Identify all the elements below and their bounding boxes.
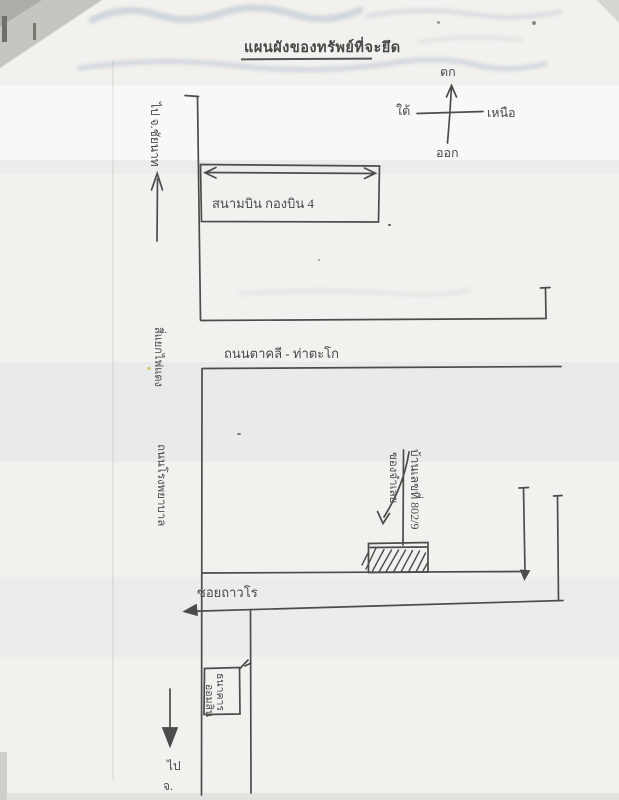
soi-label: ซอยถาวโร [197, 582, 258, 603]
airport-span-arrow [206, 173, 374, 174]
property-note-line1: บ้านเลขที่ 802/9 [405, 449, 424, 529]
compass-label-left: ใต้ [396, 101, 410, 121]
seized-house-box [362, 543, 428, 573]
property-note-line2: ของจำเลย [384, 452, 402, 503]
route-north-arrow [152, 174, 163, 242]
compass-cross [417, 86, 483, 144]
main-road-label: ถนนตาคลี - ท่าตะโก [224, 343, 339, 364]
property-note-underline [403, 450, 404, 545]
scan-speck [532, 21, 536, 25]
scan-speck [437, 21, 440, 24]
route-north-label: ไป จ.ชัยนาท [145, 102, 164, 167]
page-title: แผนผังของทรัพย์ที่จะยึด [244, 36, 401, 59]
scan-speck [388, 224, 391, 226]
scanned-map-page: แผนผังของทรัพย์ที่จะยึด ตก ใต้ เหนือ ออก… [0, 0, 619, 800]
intersection-label: สี่แยกไฟแดง [150, 327, 168, 387]
left-road-line [185, 96, 202, 796]
side-road-label: ถนนโรงพยาบาล [152, 444, 170, 526]
route-south-arrow [163, 689, 177, 746]
compass-label-bottom: ออก [436, 143, 459, 163]
scan-speck [318, 259, 320, 261]
map-drawing [0, 0, 619, 800]
route-south-label-line1: ไป [167, 757, 181, 776]
airport-label: สนามบิน กองบิน 4 [212, 193, 314, 214]
hatching [362, 548, 428, 571]
route-south-label-line2: จ. [163, 777, 173, 796]
compass-label-right: เหนือ [487, 103, 516, 123]
scan-speck [237, 433, 241, 435]
bank-label-line2: ออมสิน [201, 684, 218, 717]
compass-label-top: ตก [440, 62, 456, 82]
scan-speck-yellow [147, 367, 151, 370]
right-lower-road-line [251, 611, 252, 794]
